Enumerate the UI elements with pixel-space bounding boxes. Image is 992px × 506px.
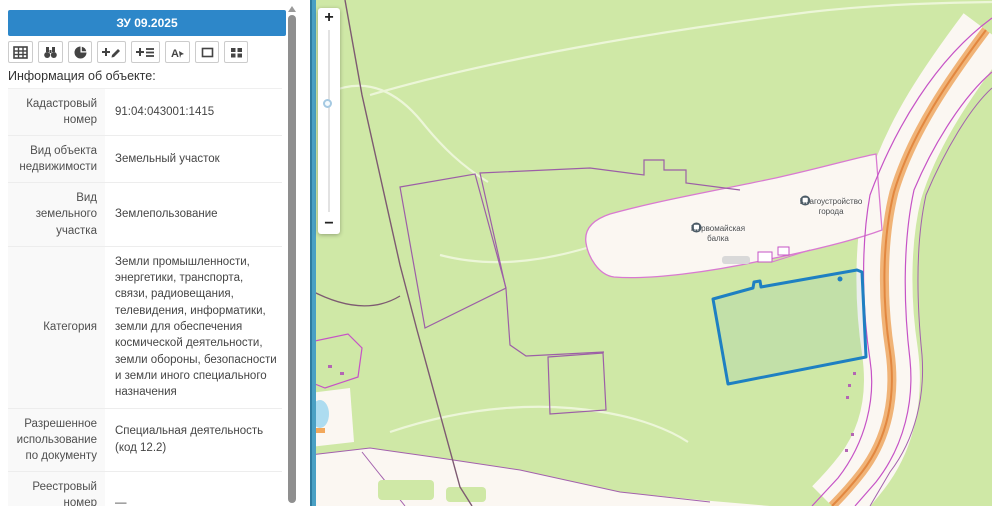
info-row-1: Вид объекта недвижимостиЗемельный участо… xyxy=(8,136,282,183)
info-row-0: Кадастровый номер91:04:043001:1415 xyxy=(8,89,282,136)
identify-icon: A xyxy=(170,46,185,59)
zoom-in-button[interactable]: + xyxy=(318,8,340,28)
toolbar-button-table[interactable] xyxy=(8,41,33,63)
toolbar-button-binoculars[interactable] xyxy=(38,41,63,63)
info-row-4: Разрешенное использование по документуСп… xyxy=(8,409,282,472)
binoculars-icon xyxy=(43,46,58,59)
rectangle-select-icon xyxy=(201,46,214,59)
zoom-control: + − xyxy=(318,8,340,234)
zoom-out-button[interactable]: − xyxy=(318,214,340,234)
info-row-5: Реестровый номер границы— xyxy=(8,472,282,506)
grid-icon xyxy=(230,46,243,59)
parcel-point xyxy=(838,277,843,282)
info-row-3: КатегорияЗемли промышленности, энергетик… xyxy=(8,247,282,409)
info-header: Информация об объекте: xyxy=(8,69,294,83)
scroll-up-icon[interactable] xyxy=(288,6,296,12)
map-edge-stripe xyxy=(310,0,316,506)
map-svg xyxy=(310,0,992,506)
info-row-label: Вид объекта недвижимости xyxy=(8,136,105,182)
pie-chart-icon xyxy=(74,46,87,59)
info-row-value: — xyxy=(105,472,282,506)
info-table: Кадастровый номер91:04:043001:1415Вид об… xyxy=(8,88,282,506)
info-row-label: Категория xyxy=(8,247,105,408)
toolbar-button-identify[interactable]: A xyxy=(165,41,190,63)
app-root: ЗУ 09.2025 A Информация об объекте: Када… xyxy=(0,0,992,506)
zoom-slider[interactable] xyxy=(318,30,340,212)
toolbar-button-pie-chart[interactable] xyxy=(68,41,92,63)
info-panel: ЗУ 09.2025 A Информация об объекте: Када… xyxy=(0,0,302,506)
info-row-value: 91:04:043001:1415 xyxy=(105,89,282,135)
info-row-label: Разрешенное использование по документу xyxy=(8,409,105,471)
info-row-value: Земельный участок xyxy=(105,136,282,182)
panel-scrollbar[interactable] xyxy=(287,6,296,506)
info-row-value: Специальная деятельность (код 12.2) xyxy=(105,409,282,471)
scrollbar-thumb[interactable] xyxy=(288,15,296,503)
toolbar-button-add-list[interactable] xyxy=(131,41,160,63)
info-row-label: Реестровый номер границы xyxy=(8,472,105,506)
toolbar-button-grid[interactable] xyxy=(224,41,248,63)
add-edit-icon xyxy=(102,46,121,59)
zoom-slider-handle[interactable] xyxy=(323,99,332,108)
road-badge xyxy=(722,256,750,264)
info-row-label: Вид земельного участка xyxy=(8,183,105,245)
info-row-2: Вид земельного участкаЗемлепользование xyxy=(8,183,282,246)
map-canvas[interactable]: Первомайская балка Благоустройство город… xyxy=(310,0,992,506)
info-row-value: Землепользование xyxy=(105,183,282,245)
info-row-value: Земли промышленности, энергетики, трансп… xyxy=(105,247,282,408)
toolbar-button-add-edit[interactable] xyxy=(97,41,126,63)
toolbar: A xyxy=(8,41,286,63)
table-icon xyxy=(13,46,28,59)
object-tab[interactable]: ЗУ 09.2025 xyxy=(8,10,286,36)
add-list-icon xyxy=(136,46,155,59)
info-row-label: Кадастровый номер xyxy=(8,89,105,135)
toolbar-button-rectangle-select[interactable] xyxy=(195,41,219,63)
svg-text:A: A xyxy=(171,48,179,59)
